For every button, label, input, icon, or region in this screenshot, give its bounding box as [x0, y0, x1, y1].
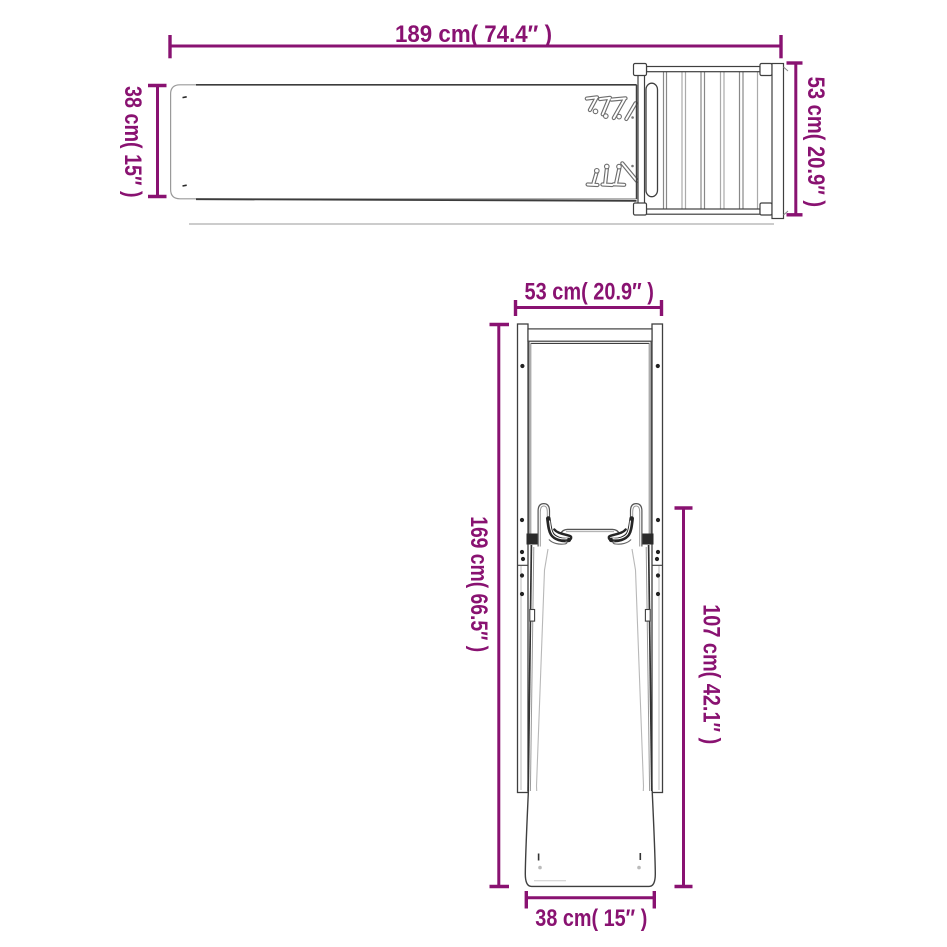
svg-text:38 cm( 15″ ): 38 cm( 15″ )	[119, 86, 146, 198]
svg-text:38 cm( 15″ ): 38 cm( 15″ )	[535, 905, 647, 932]
svg-text:107 cm( 42.1″ ): 107 cm( 42.1″ )	[698, 604, 725, 744]
svg-text:189 cm( 74.4″ ): 189 cm( 74.4″ )	[395, 21, 552, 48]
svg-text:53 cm( 20.9″ ): 53 cm( 20.9″ )	[802, 77, 829, 208]
svg-text:53 cm( 20.9″ ): 53 cm( 20.9″ )	[525, 278, 654, 305]
svg-text:169 cm( 66.5″ ): 169 cm( 66.5″ )	[465, 516, 492, 652]
